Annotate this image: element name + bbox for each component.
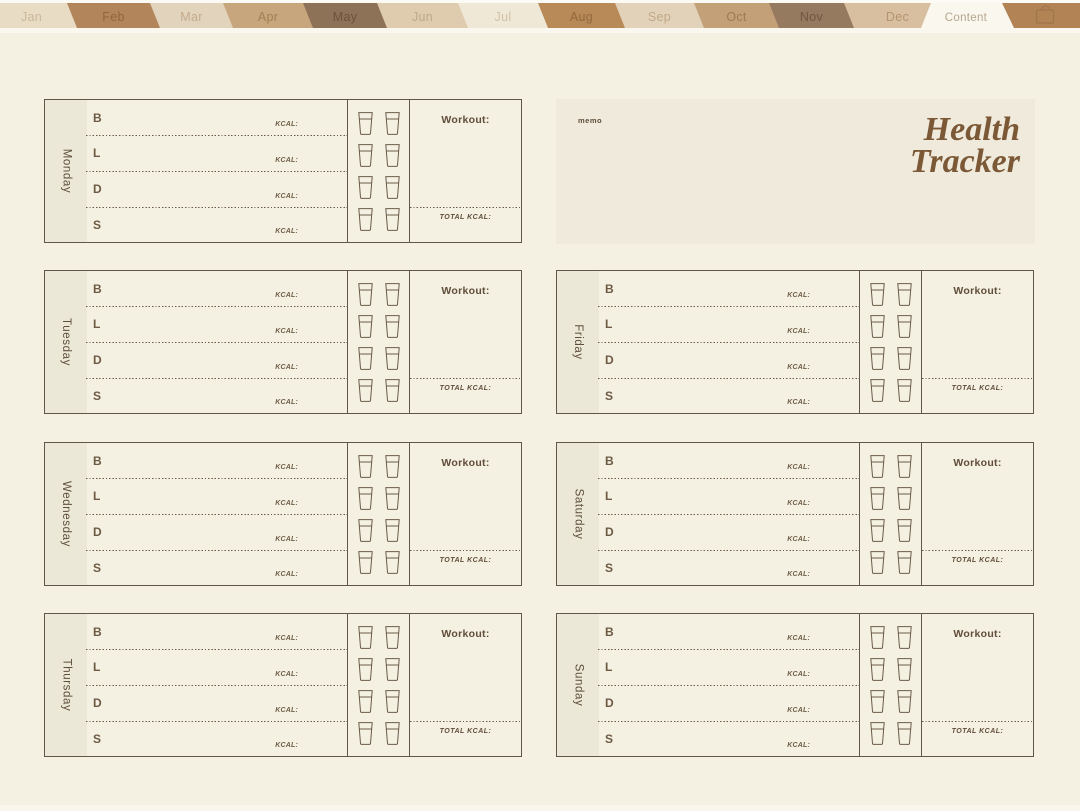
svg-text:Jan: Jan	[21, 10, 42, 24]
svg-text:Jul: Jul	[495, 10, 512, 24]
svg-text:Aug: Aug	[570, 10, 593, 24]
svg-text:Nov: Nov	[800, 10, 824, 24]
svg-text:Content: Content	[945, 12, 988, 24]
svg-text:Sep: Sep	[648, 10, 671, 24]
svg-text:Dec: Dec	[886, 10, 909, 24]
svg-text:Oct: Oct	[726, 10, 747, 24]
svg-text:Feb: Feb	[102, 10, 124, 24]
svg-text:Mar: Mar	[180, 10, 202, 24]
svg-text:May: May	[333, 10, 358, 24]
svg-text:Jun: Jun	[412, 10, 433, 24]
svg-text:Apr: Apr	[258, 10, 278, 24]
